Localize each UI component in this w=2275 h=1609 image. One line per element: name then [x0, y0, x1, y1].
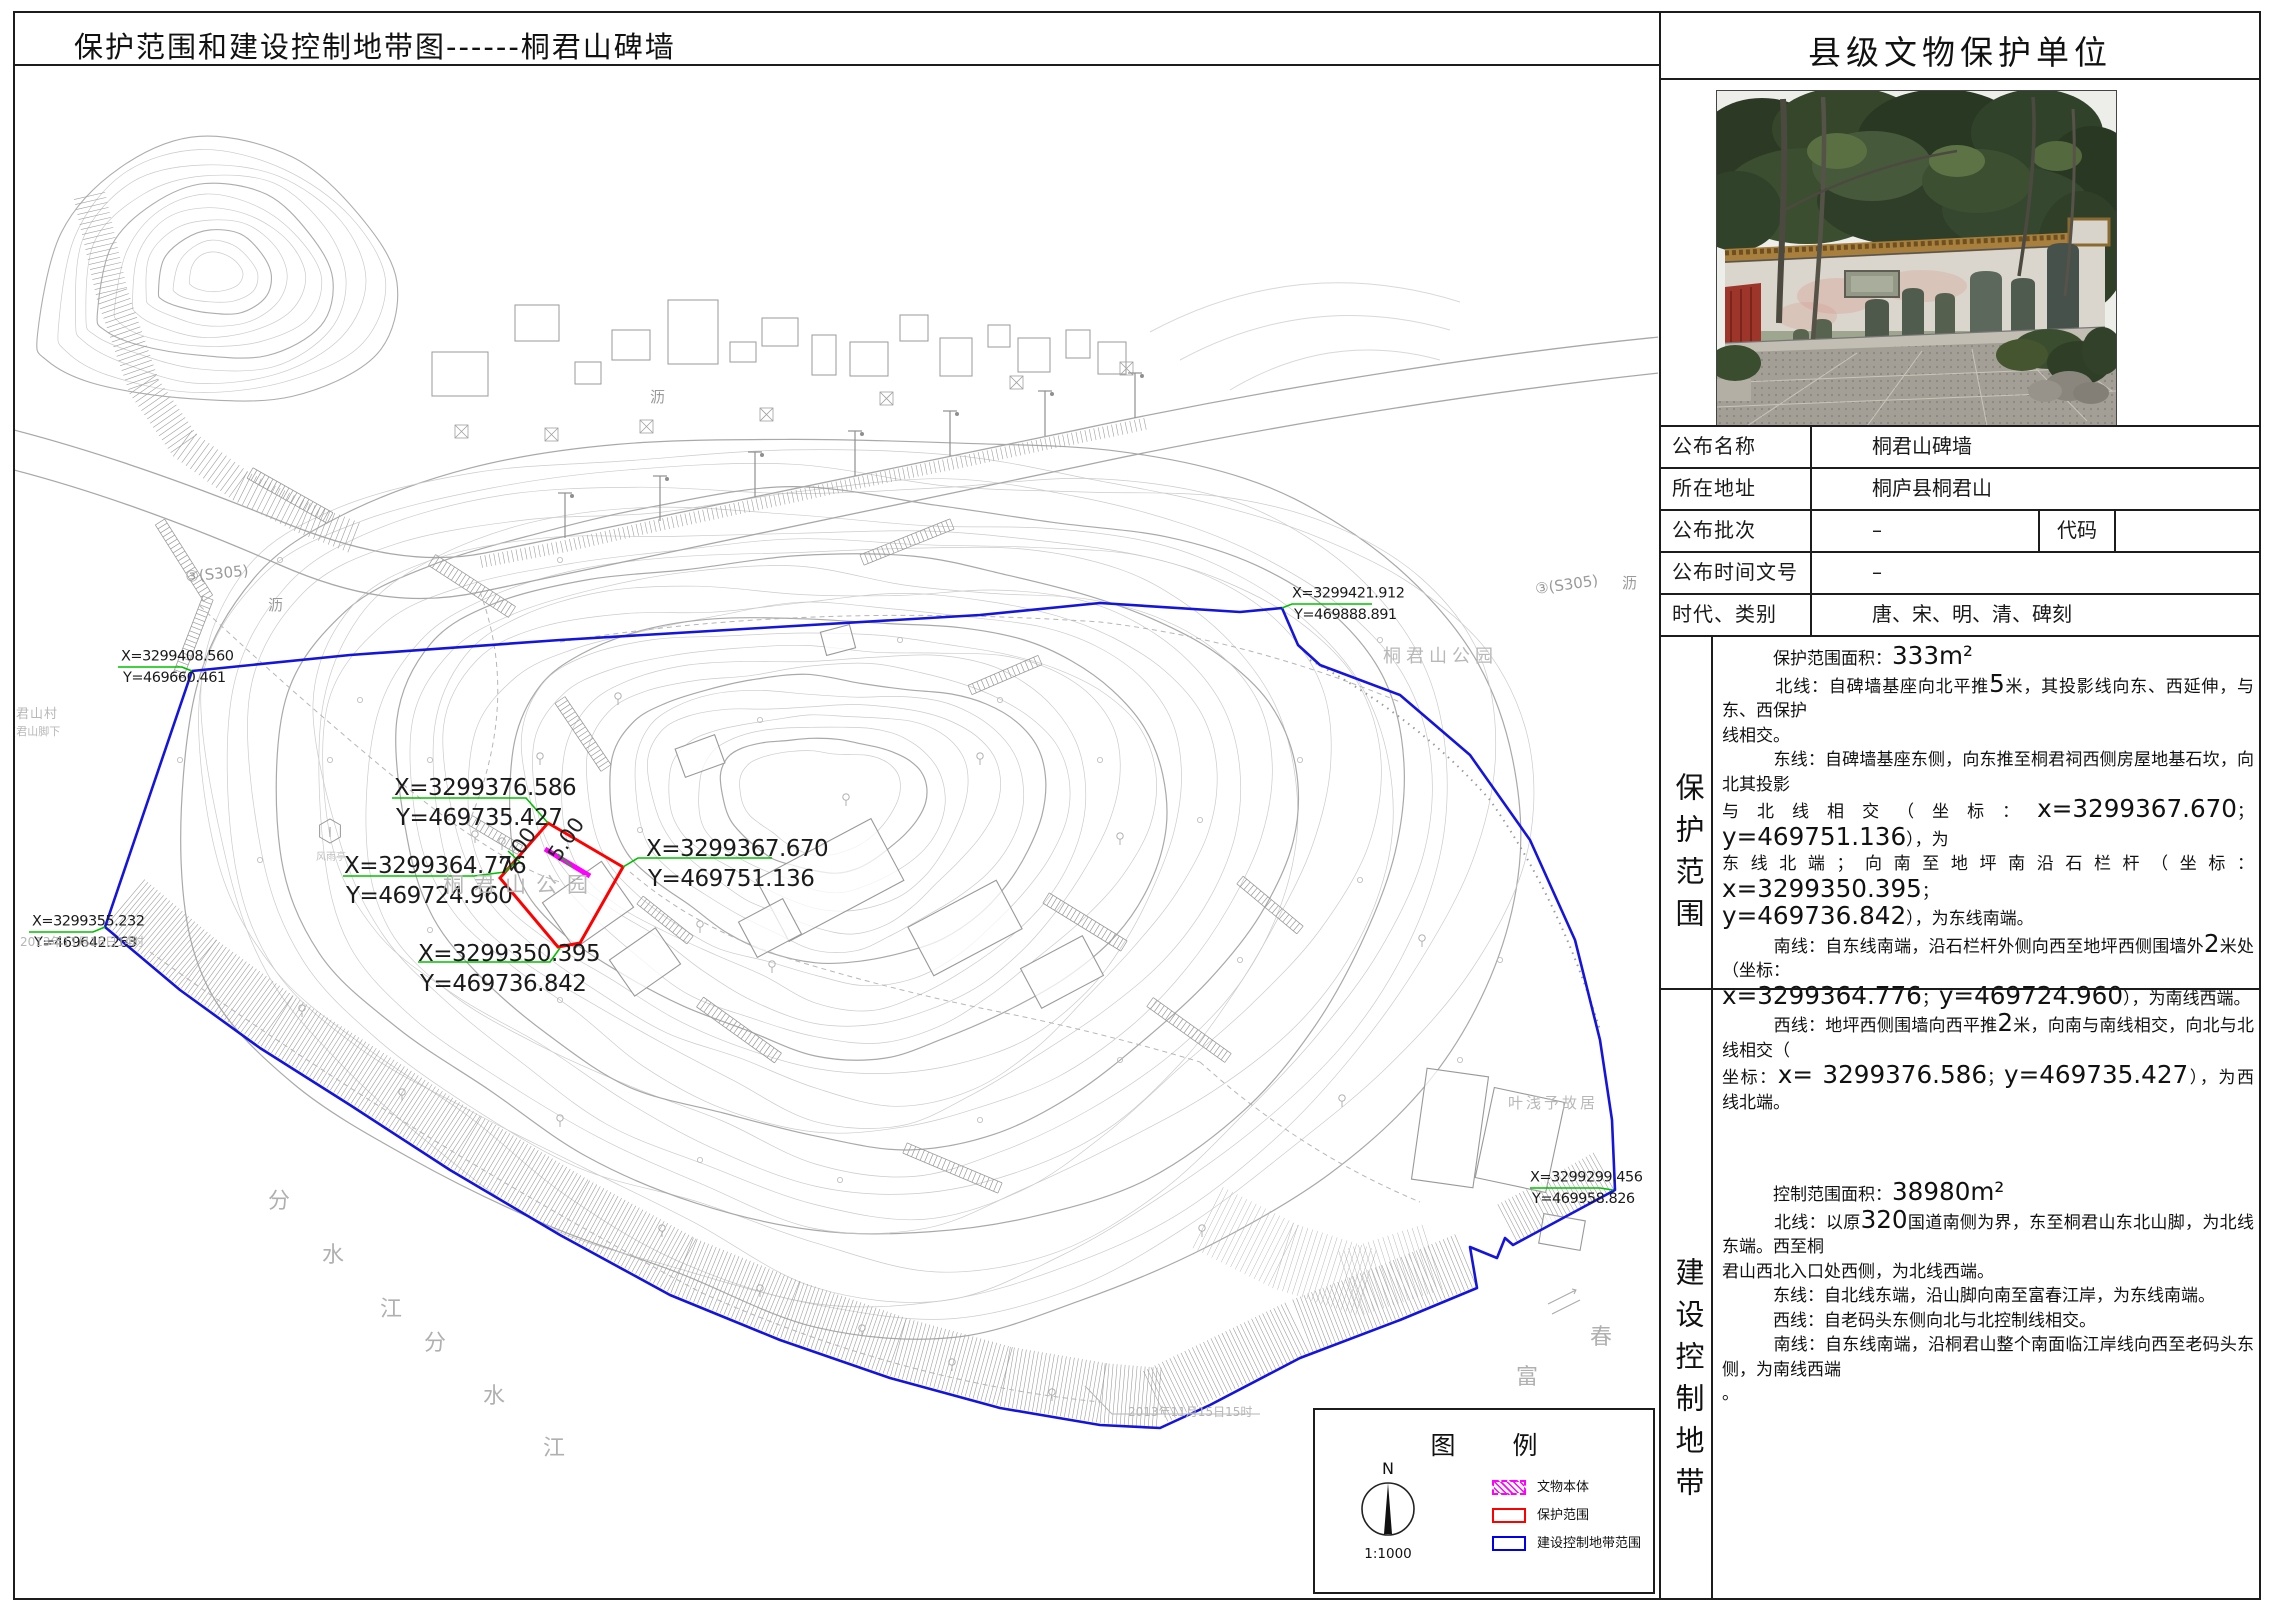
table-value-address: 桐庐县桐君山: [1872, 467, 1992, 509]
place-label: 水: [483, 1384, 505, 1409]
protection-scope-side-label: 保护范围: [1663, 724, 1709, 988]
protection-coordinate-label: X=3299367.670: [646, 836, 828, 862]
legend-label-monument: 文物本体: [1537, 1480, 1589, 1496]
road-label: 沥: [650, 388, 665, 406]
place-label: (君山脚下: [12, 724, 60, 738]
place-label: 春: [1590, 1325, 1612, 1350]
table-label-era: 时代、类别: [1672, 593, 1777, 635]
table-label-batch: 公布批次: [1672, 509, 1756, 551]
boundary-coordinate-label: Y=469888.891: [1293, 607, 1397, 623]
road-label: 沥: [268, 596, 283, 614]
legend: 图 例 N 1:1000 文物本体 保护范围 建设控制地带范围: [1313, 1408, 1655, 1594]
compass-needle-icon: [1384, 1483, 1392, 1534]
road-label: 沥: [1622, 574, 1637, 592]
legend-swatch-control-zone: [1492, 1536, 1526, 1551]
title-underline-right: [1659, 78, 2261, 80]
sheet-title: 保护范围和建设控制地带图------桐君山碑墙: [74, 24, 676, 66]
compass: N 1:1000: [1353, 1460, 1423, 1570]
table-label-name: 公布名称: [1672, 425, 1756, 467]
place-label: 分: [424, 1331, 446, 1356]
survey-date-label: 2013年11月15日15时: [1128, 1405, 1252, 1419]
sheet: X=3299408.560Y=469660.461X=3299355.232Y=…: [0, 0, 2275, 1609]
table-value-era: 唐、宋、明、清、碑刻: [1872, 593, 2072, 635]
road-label: ③(S305): [185, 561, 250, 586]
legend-title: 图 例: [1315, 1426, 1653, 1462]
place-label: 江: [543, 1436, 565, 1461]
compass-north-label: N: [1382, 1460, 1394, 1478]
map-scale: 1:1000: [1364, 1546, 1412, 1562]
border-right: [2259, 11, 2261, 1600]
title-underline-left: [13, 64, 1661, 66]
place-label: 桐君山公园: [1383, 646, 1498, 667]
boundary-coordinate-label: Y=469660.461: [122, 670, 226, 686]
table-label-code: 代码: [2040, 509, 2114, 551]
place-label: 江: [380, 1297, 402, 1322]
border-bottom: [13, 1598, 2261, 1600]
boundary-coordinate-label: Y=469958.826: [1531, 1191, 1635, 1207]
legend-swatch-protection: [1492, 1508, 1526, 1523]
protection-coordinate-label: X=3299350.395: [418, 941, 600, 967]
road-label: ③(S305): [1534, 571, 1599, 598]
unit-class-title: 县级文物保护单位: [1659, 26, 2261, 74]
survey-date-label: 2013年11月16日14时: [20, 935, 144, 949]
table-value-name: 桐君山碑墙: [1872, 425, 1972, 467]
protection-scope-text: 保护范围面积：333m² 北线：自碑墙基座向北平推5米，其投影线向东、西延伸，与…: [1722, 644, 2254, 1115]
legend-label-protection: 保护范围: [1537, 1508, 1589, 1524]
table-label-docno: 公布时间文号: [1672, 551, 1798, 593]
place-label: 分: [268, 1189, 290, 1214]
place-label: 叶浅予故居: [1508, 1094, 1598, 1112]
table-value-batch: –: [1872, 509, 1882, 551]
boundary-coordinate-label: X=3299355.232: [32, 914, 144, 930]
border-left: [13, 11, 15, 1600]
place-label: 水: [322, 1243, 344, 1268]
site-photo: [1716, 90, 2117, 427]
divider-panel: [1659, 11, 1661, 1600]
table-value-docno: –: [1872, 551, 1882, 593]
boundary-coordinate-label: X=3299408.560: [121, 649, 234, 665]
control-zone-side-label: 建设控制地带: [1663, 1168, 1709, 1598]
protection-coordinate-label: X=3299376.586: [394, 775, 576, 801]
section-divider: [1659, 988, 2261, 990]
place-label: 君山村: [16, 707, 58, 722]
legend-label-control-zone: 建设控制地带范围: [1537, 1536, 1641, 1552]
control-zone-text: 控制范围面积：38980m² 北线：以原320国道南侧为界，东至桐君山东北山脚，…: [1722, 1180, 2254, 1407]
boundary-coordinate-label: X=3299299.456: [1530, 1170, 1643, 1186]
border-top: [13, 11, 2261, 13]
protection-coordinate-label: Y=469736.842: [419, 971, 586, 997]
boundary-coordinate-label: X=3299421.912: [1292, 586, 1404, 602]
legend-swatch-monument: [1492, 1480, 1526, 1495]
place-label: 风雨亭: [316, 850, 346, 863]
place-label: 桐君山公园: [443, 873, 598, 897]
place-label: 富: [1516, 1365, 1538, 1390]
protection-coordinate-label: Y=469735.427: [395, 805, 562, 831]
table-label-address: 所在地址: [1672, 467, 1756, 509]
protection-coordinate-label: Y=469751.136: [647, 866, 814, 892]
